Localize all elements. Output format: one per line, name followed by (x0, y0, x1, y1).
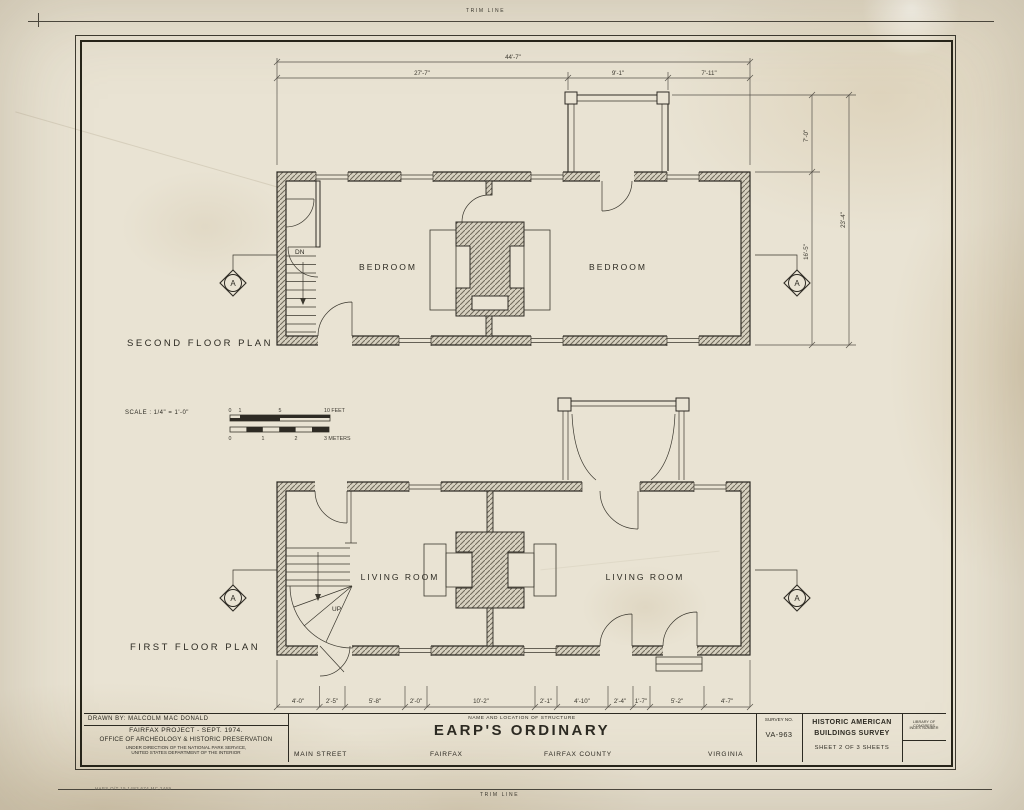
scale-feet-0: 0 (229, 408, 232, 414)
second-floor-doors (286, 171, 634, 346)
title-block: DRAWN BY: MALCOLM MAC DONALD FAIRFAX PRO… (84, 713, 946, 762)
first-floor-chimney (424, 532, 556, 608)
scale-bar-meters: 0 1 2 3 METERS (229, 427, 351, 442)
second-floor-plan: DN BEDROOM BEDROOM SECOND FLOOR PLAN (127, 92, 750, 349)
dim-bot-9: 1'-7" (635, 698, 647, 705)
first-floor-stair: UP (286, 491, 357, 648)
second-floor-porch-roof (565, 92, 669, 172)
habs-line1: HISTORIC AMERICAN (802, 719, 902, 726)
dim-top-seg2: 9'-1" (612, 70, 624, 77)
room-label-living-left: LIVING ROOM (361, 572, 440, 582)
scale-feet-1: 1 (239, 408, 242, 414)
dim-bot-5: 10'-2" (473, 698, 489, 705)
survey-no-label: SURVEY NO. (756, 717, 802, 722)
section-marker-first-left: A (220, 570, 277, 611)
scale-feet-10: 10 FEET (324, 408, 346, 414)
second-floor-chimney (430, 222, 550, 316)
second-floor-plan-title: SECOND FLOOR PLAN (127, 338, 273, 349)
scale-feet-5: 5 (279, 408, 282, 414)
top-dimensions: 44'-7" 27'-7" 9'-1" 7'-11" (274, 54, 753, 165)
structure-name-label: NAME AND LOCATION OF STRUCTURE (288, 716, 756, 721)
marker-letter: A (794, 279, 800, 288)
structure-county: FAIRFAX COUNTY (544, 751, 612, 758)
section-marker-second-left: A (220, 255, 277, 296)
title-block-divider (84, 725, 288, 726)
room-label-bedroom-left: BEDROOM (359, 262, 417, 272)
loc-line2: INDEX NUMBER (902, 726, 946, 730)
project-line: FAIRFAX PROJECT - SEPT. 1974. (84, 727, 288, 734)
right-dimensions: 7'-0" 16'-5" 23'-4" (672, 92, 856, 348)
second-floor-stair: DN (286, 181, 320, 332)
marker-letter: A (794, 594, 800, 603)
dim-top-seg1: 27'-7" (414, 70, 430, 77)
scale-m-0: 0 (229, 436, 232, 442)
dim-bot-1: 4'-0" (292, 698, 304, 705)
structure-name: EARP'S ORDINARY (288, 722, 756, 739)
stair-up-label: UP (332, 606, 341, 613)
dim-bot-10: 5'-2" (671, 698, 683, 705)
bottom-dimensions: 4'-0" 2'-5" 5'-8" 2'-0" 10'-2" 2'-1" 4'-… (274, 660, 753, 710)
dim-bot-11: 4'-7" (721, 698, 733, 705)
sheet-info: SHEET 2 OF 3 SHEETS (802, 745, 902, 751)
dim-bot-3: 5'-8" (369, 698, 381, 705)
structure-state: VIRGINIA (708, 751, 743, 758)
structure-city: FAIRFAX (430, 751, 463, 758)
dim-overall-width: 44'-7" (505, 54, 521, 61)
drawn-by: DRAWN BY: MALCOLM MAC DONALD (88, 716, 208, 722)
office-line: OFFICE OF ARCHEOLOGY & HISTORIC PRESERVA… (84, 736, 288, 743)
scale-m-2: 2 (295, 436, 298, 442)
dim-bot-2: 2'-5" (326, 698, 338, 705)
dim-bot-4: 2'-0" (410, 698, 422, 705)
marker-letter: A (230, 594, 236, 603)
first-floor-plan-title: FIRST FLOOR PLAN (130, 642, 260, 653)
section-marker-first-right: A (755, 570, 810, 611)
scale-m-3: 3 METERS (324, 436, 351, 442)
stair-dn-label: DN (295, 249, 305, 256)
first-floor-porch (558, 398, 689, 480)
under-direction: UNDER DIRECTION OF THE NATIONAL PARK SER… (84, 745, 288, 756)
second-floor-walls (277, 172, 750, 345)
dim-right-overall: 23'-4" (840, 212, 847, 228)
section-marker-second-right: A (755, 255, 810, 296)
room-label-bedroom-right: BEDROOM (589, 262, 647, 272)
dim-top-seg3: 7'-11" (701, 70, 716, 77)
dim-bot-8: 2'-4" (614, 698, 626, 705)
room-label-living-right: LIVING ROOM (606, 572, 685, 582)
habs-line2: BUILDINGS SURVEY (802, 730, 902, 737)
plan-drawing: DN BEDROOM BEDROOM SECOND FLOOR PLAN (0, 0, 1024, 810)
survey-no: VA-963 (756, 730, 802, 739)
scale-m-1: 1 (262, 436, 265, 442)
scale-label: SCALE : 1/4" = 1'-0" (125, 410, 189, 416)
library-of-congress-box: LIBRARY OF CONGRESS INDEX NUMBER (902, 714, 946, 741)
scale-block: SCALE : 1/4" = 1'-0" 0 1 5 10 FEET 0 1 2… (125, 408, 351, 442)
first-floor-plan: UP LIVING ROOM LIVING ROOM FIRST FLOOR P… (130, 398, 750, 676)
structure-street: MAIN STREET (294, 751, 347, 758)
dim-right-upper: 7'-0" (803, 130, 810, 142)
scale-bar-feet: 0 1 5 10 FEET (229, 408, 346, 421)
dim-bot-7: 4'-10" (574, 698, 590, 705)
dim-right-lower: 16'-5" (803, 244, 810, 260)
dim-bot-6: 2'-1" (540, 698, 552, 705)
marker-letter: A (230, 279, 236, 288)
